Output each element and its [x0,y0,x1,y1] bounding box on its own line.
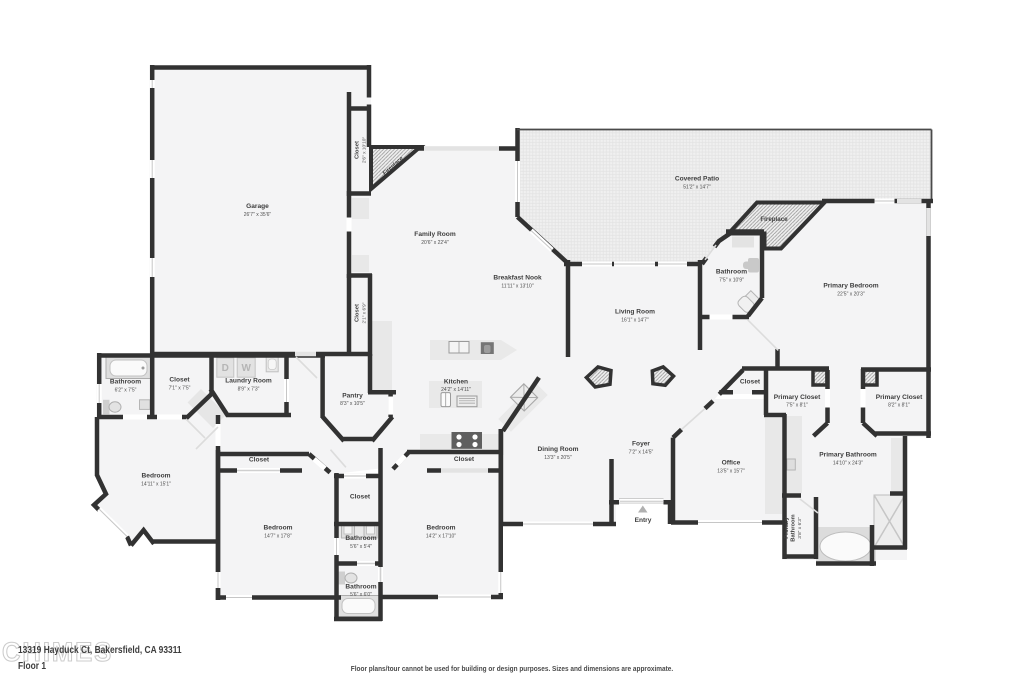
svg-text:Office: Office [722,460,741,467]
svg-text:Closet: Closet [740,379,761,386]
svg-text:Closet: Closet [169,377,190,384]
svg-text:6'2" x 7'5": 6'2" x 7'5" [115,388,137,394]
svg-text:Fireplace: Fireplace [760,216,788,223]
svg-text:16'1" x 14'7": 16'1" x 14'7" [621,318,649,324]
svg-text:Closet: Closet [249,457,270,464]
svg-text:14'2" x 17'10": 14'2" x 17'10" [426,534,456,540]
svg-text:Closet: Closet [355,304,361,322]
svg-text:Garage: Garage [246,203,269,210]
svg-text:Primary Bathroom: Primary Bathroom [819,452,877,459]
svg-text:Dining Room: Dining Room [537,446,578,453]
svg-text:Foyer: Foyer [632,441,650,448]
svg-text:Laundry Room: Laundry Room [225,378,272,385]
svg-text:8'9" x 7'3": 8'9" x 7'3" [238,387,260,393]
svg-text:Bathroom: Bathroom [716,269,747,276]
svg-text:7'5" x 10'9": 7'5" x 10'9" [719,278,744,284]
svg-text:14'7" x 17'8": 14'7" x 17'8" [264,534,292,540]
svg-text:14'10" x 24'3": 14'10" x 24'3" [833,461,863,467]
svg-text:Bathroom: Bathroom [791,514,797,541]
svg-text:8'2" x 8'1": 8'2" x 8'1" [888,403,910,409]
svg-text:20'6" x 22'4": 20'6" x 22'4" [421,240,449,246]
svg-text:3'8" x 6'3": 3'8" x 6'3" [797,517,803,539]
svg-text:Primary Closet: Primary Closet [774,394,821,401]
svg-text:Pantry: Pantry [342,393,363,400]
svg-text:7'2" x 14'5": 7'2" x 14'5" [629,450,654,456]
svg-text:Breakfast Nook: Breakfast Nook [493,275,542,282]
svg-text:51'2" x 14'7": 51'2" x 14'7" [683,185,711,191]
svg-text:22'5" x 20'3": 22'5" x 20'3" [837,292,865,298]
svg-text:Primary Closet: Primary Closet [876,394,923,401]
svg-text:Covered Patio: Covered Patio [675,176,719,183]
svg-text:7'1" x 7'5": 7'1" x 7'5" [169,386,191,392]
svg-text:Bathroom: Bathroom [345,535,376,542]
svg-text:Living Room: Living Room [615,309,655,316]
svg-text:14'11" x 15'1": 14'11" x 15'1" [141,482,171,488]
svg-text:5'6" x 5'4": 5'6" x 5'4" [350,544,372,550]
svg-text:11'11" x 13'10": 11'11" x 13'10" [501,284,533,290]
svg-text:Kitchen: Kitchen [444,379,468,386]
svg-text:24'2" x 14'11": 24'2" x 14'11" [441,387,471,393]
svg-text:Bedroom: Bedroom [142,473,171,480]
svg-text:5'6" x 6'0": 5'6" x 6'0" [350,592,372,598]
svg-text:Closet: Closet [350,494,371,501]
svg-text:Bathroom: Bathroom [345,584,376,591]
svg-text:Entry: Entry [635,517,652,524]
svg-text:2'6" x 10'10": 2'6" x 10'10" [362,137,368,164]
svg-text:Bedroom: Bedroom [427,525,456,532]
svg-text:W: W [241,363,251,374]
svg-text:Bathroom: Bathroom [110,379,141,386]
svg-text:13'3" x 20'5": 13'3" x 20'5" [544,455,572,461]
svg-text:2'1" x 6'9": 2'1" x 6'9" [362,302,368,323]
svg-text:D: D [222,363,229,374]
svg-text:Bedroom: Bedroom [264,525,293,532]
svg-text:13'5" x 15'7": 13'5" x 15'7" [717,469,745,475]
svg-text:Family Room: Family Room [414,231,456,238]
svg-text:Closet: Closet [355,141,361,159]
svg-text:Primary: Primary [784,516,790,538]
svg-text:26'7" x 35'6": 26'7" x 35'6" [244,212,272,218]
svg-text:8'3" x 10'5": 8'3" x 10'5" [340,401,365,407]
svg-text:7'5" x 8'1": 7'5" x 8'1" [786,403,808,409]
svg-text:Closet: Closet [454,456,475,463]
svg-text:Primary Bedroom: Primary Bedroom [823,283,878,290]
